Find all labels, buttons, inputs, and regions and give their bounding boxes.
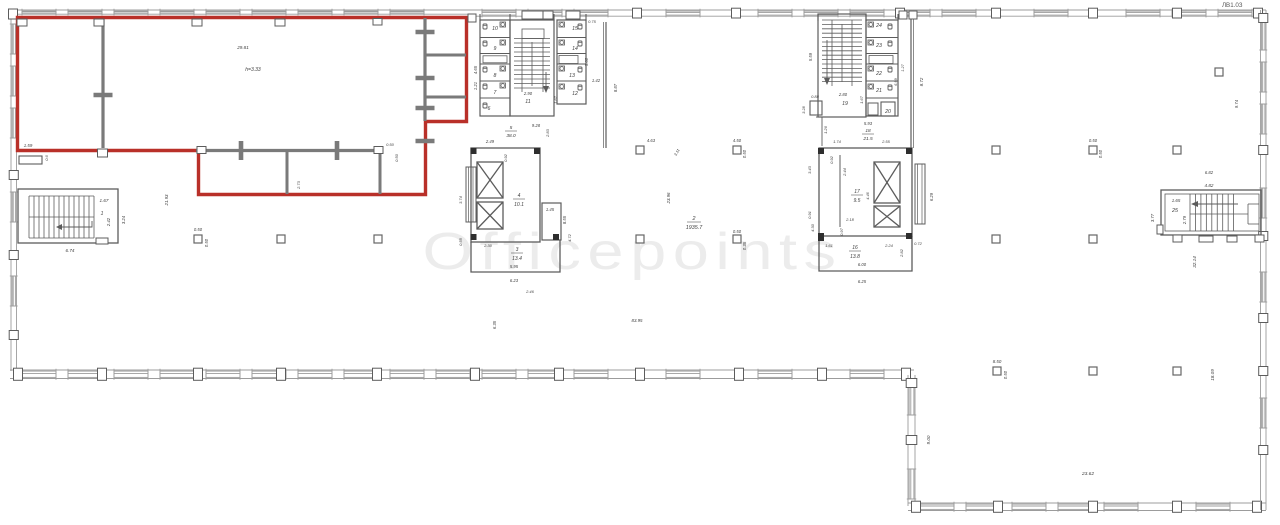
svg-text:1.67: 1.67 [859, 95, 864, 104]
svg-text:18.09: 18.09 [1210, 369, 1215, 381]
svg-text:6.23: 6.23 [510, 278, 519, 283]
svg-text:3.24: 3.24 [121, 215, 126, 224]
svg-text:83.95: 83.95 [632, 318, 644, 323]
svg-text:0.88: 0.88 [811, 94, 820, 99]
svg-text:0.50: 0.50 [386, 142, 395, 147]
svg-text:6.00: 6.00 [858, 262, 867, 267]
svg-text:6.82: 6.82 [1205, 170, 1214, 175]
svg-text:3.28: 3.28 [802, 105, 806, 113]
svg-text:5.95: 5.95 [510, 264, 519, 269]
svg-text:3: 3 [516, 247, 519, 253]
svg-text:8.50: 8.50 [993, 359, 1002, 364]
svg-text:8: 8 [494, 73, 497, 79]
svg-text:11: 11 [525, 99, 530, 105]
svg-text:14: 14 [572, 46, 578, 52]
svg-text:3.74: 3.74 [458, 195, 463, 204]
svg-text:3.43: 3.43 [807, 165, 812, 174]
svg-text:8.72: 8.72 [919, 77, 924, 86]
svg-text:6.29: 6.29 [929, 192, 934, 201]
svg-text:2.79: 2.79 [1182, 215, 1187, 225]
svg-text:4.72: 4.72 [567, 233, 572, 242]
svg-text:0.50: 0.50 [733, 229, 742, 234]
svg-text:1: 1 [101, 211, 104, 217]
svg-text:6.99: 6.99 [894, 77, 898, 85]
svg-text:6.25: 6.25 [858, 279, 867, 284]
svg-text:6: 6 [488, 106, 491, 112]
svg-text:15: 15 [572, 26, 578, 32]
svg-text:20: 20 [884, 109, 891, 115]
svg-text:22: 22 [875, 71, 882, 77]
svg-text:29.81: 29.81 [236, 45, 249, 50]
svg-text:9.00: 9.00 [926, 435, 931, 444]
svg-text:8.87: 8.87 [613, 83, 618, 92]
svg-text:8.55: 8.55 [562, 215, 567, 224]
svg-text:4.82: 4.82 [1205, 183, 1214, 188]
svg-text:5.60: 5.60 [584, 57, 589, 66]
svg-text:9.5: 9.5 [854, 198, 861, 204]
svg-text:5.93: 5.93 [864, 121, 873, 126]
svg-text:4.30: 4.30 [810, 223, 815, 232]
svg-text:2.83: 2.83 [545, 128, 550, 138]
svg-text:19: 19 [842, 101, 848, 107]
svg-text:2: 2 [692, 216, 696, 222]
svg-text:1.45: 1.45 [546, 207, 555, 212]
svg-text:2.46: 2.46 [525, 289, 535, 294]
svg-text:0.97: 0.97 [839, 227, 844, 236]
svg-text:0.50: 0.50 [742, 149, 747, 158]
svg-text:0.6: 0.6 [44, 154, 49, 160]
svg-text:2.90: 2.90 [523, 91, 533, 96]
svg-text:1.21: 1.21 [473, 82, 478, 90]
svg-text:0.72: 0.72 [914, 241, 923, 246]
svg-text:12: 12 [572, 91, 578, 97]
svg-text:1.61: 1.61 [825, 243, 833, 248]
svg-text:0.50: 0.50 [204, 238, 209, 247]
svg-text:0.50: 0.50 [1003, 370, 1008, 379]
svg-text:25: 25 [1171, 208, 1179, 214]
svg-text:2.73: 2.73 [296, 180, 301, 190]
svg-text:0.92: 0.92 [829, 155, 834, 164]
svg-text:24: 24 [875, 23, 882, 29]
svg-text:2.55: 2.55 [881, 139, 891, 144]
svg-text:2.30: 2.30 [483, 243, 493, 248]
svg-text:0.91: 0.91 [807, 211, 812, 219]
svg-text:5.59: 5.59 [808, 52, 813, 61]
svg-text:5: 5 [510, 125, 513, 131]
svg-text:3.77: 3.77 [1150, 213, 1155, 222]
svg-text:1.59: 1.59 [24, 143, 33, 148]
svg-text:0.92: 0.92 [503, 153, 508, 162]
svg-text:1.74: 1.74 [833, 139, 842, 144]
svg-text:1.65: 1.65 [1172, 198, 1181, 203]
svg-text:13.4: 13.4 [512, 256, 522, 262]
svg-text:0.50: 0.50 [1089, 138, 1098, 143]
svg-text:1935.7: 1935.7 [686, 225, 703, 231]
svg-text:h=3.33: h=3.33 [245, 67, 261, 73]
svg-text:0.55: 0.55 [458, 237, 463, 246]
svg-text:4.50: 4.50 [733, 138, 742, 143]
svg-text:9: 9 [494, 46, 497, 52]
svg-text:38.0: 38.0 [506, 133, 516, 139]
svg-text:1.27: 1.27 [901, 63, 905, 71]
svg-text:2.24: 2.24 [884, 243, 894, 248]
svg-text:2.42: 2.42 [106, 217, 111, 227]
svg-text:13: 13 [569, 73, 575, 79]
svg-text:0.75: 0.75 [588, 19, 597, 24]
svg-text:2.49: 2.49 [485, 139, 495, 144]
svg-text:0.35: 0.35 [742, 241, 747, 250]
svg-text:1.26: 1.26 [823, 125, 828, 134]
svg-text:21.93: 21.93 [164, 194, 169, 207]
svg-text:10.1: 10.1 [514, 202, 524, 208]
svg-text:1.67: 1.67 [100, 198, 109, 203]
svg-text:9.28: 9.28 [532, 123, 541, 128]
svg-text:6.74: 6.74 [66, 248, 75, 253]
svg-text:6.35: 6.35 [492, 320, 497, 329]
svg-text:4.63: 4.63 [647, 138, 656, 143]
svg-text:4.46: 4.46 [866, 191, 870, 199]
svg-text:2.82: 2.82 [899, 248, 904, 258]
svg-text:9.74: 9.74 [1234, 99, 1239, 108]
svg-text:23.62: 23.62 [1081, 471, 1094, 477]
svg-text:0.50: 0.50 [1098, 149, 1103, 158]
svg-text:21.5: 21.5 [862, 136, 873, 142]
svg-text:2.44: 2.44 [842, 167, 847, 177]
svg-text:23: 23 [875, 43, 882, 49]
svg-text:0.50: 0.50 [394, 153, 399, 162]
svg-text:2.80: 2.80 [838, 92, 848, 97]
svg-text:ЛВ1.0З: ЛВ1.0З [1222, 2, 1243, 9]
svg-text:17: 17 [854, 189, 860, 195]
svg-text:16: 16 [852, 245, 858, 251]
svg-text:4: 4 [518, 193, 521, 199]
svg-text:23.96: 23.96 [666, 192, 671, 205]
svg-text:0.50: 0.50 [194, 227, 203, 232]
svg-text:13.8: 13.8 [850, 254, 860, 260]
svg-text:18: 18 [865, 128, 871, 134]
svg-text:4.65: 4.65 [473, 65, 478, 74]
svg-text:32.14: 32.14 [1192, 256, 1197, 268]
svg-text:21: 21 [875, 88, 882, 94]
svg-text:2.18: 2.18 [845, 217, 855, 222]
svg-text:10: 10 [492, 26, 498, 32]
svg-text:1.42: 1.42 [592, 78, 601, 83]
